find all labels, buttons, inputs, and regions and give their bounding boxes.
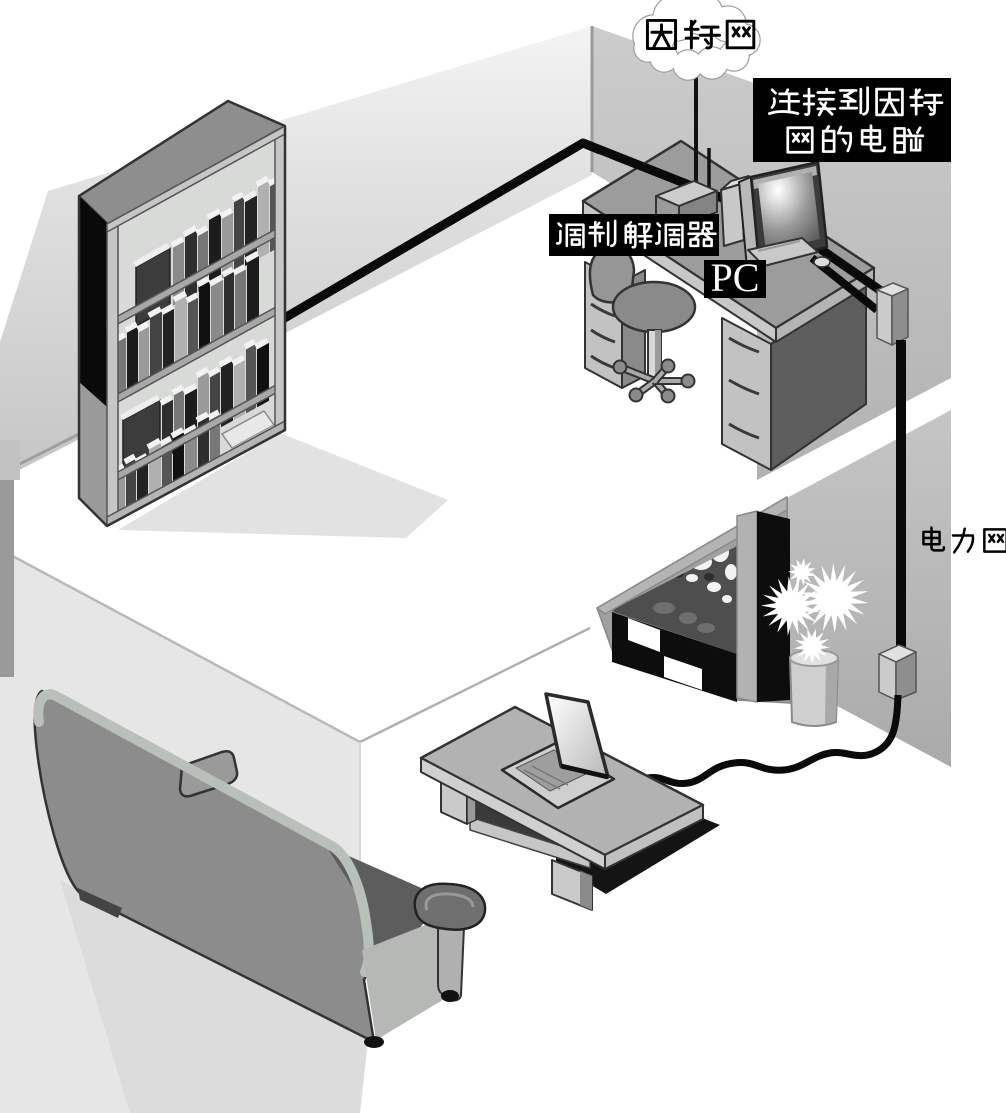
svg-text:PC: PC: [711, 255, 760, 300]
